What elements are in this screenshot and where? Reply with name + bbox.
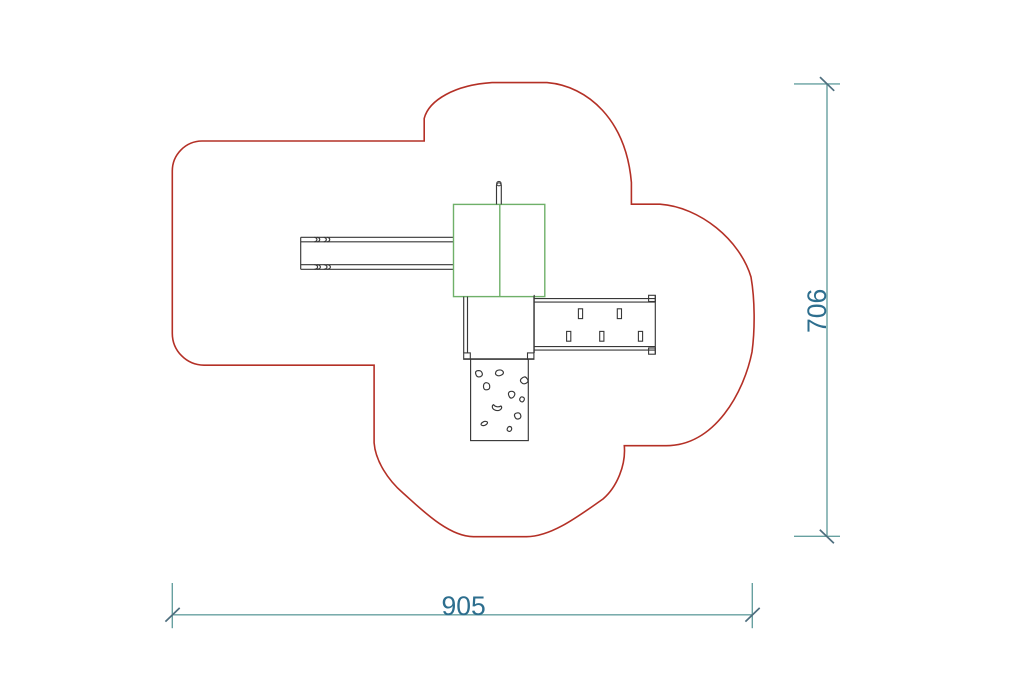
svg-text:706: 706 — [802, 289, 832, 333]
svg-text:905: 905 — [442, 591, 486, 621]
